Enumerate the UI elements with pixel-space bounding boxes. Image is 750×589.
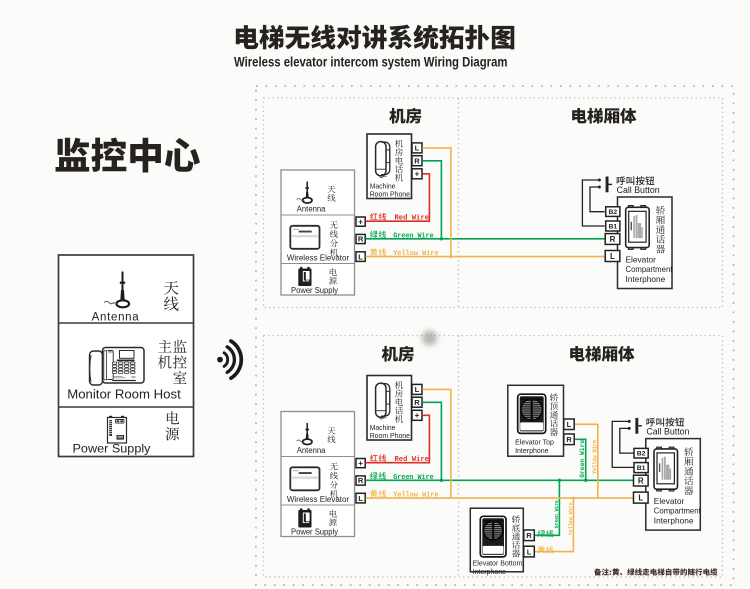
svg-text:Antenna: Antenna	[297, 205, 326, 214]
svg-text:Red Wire: Red Wire	[395, 456, 430, 464]
svg-text:Elevator Bottom: Elevator Bottom	[473, 560, 523, 567]
svg-text:Wireless elevator intercom sys: Wireless elevator intercom system Wiring…	[234, 55, 508, 70]
svg-text:Yellow Wire: Yellow Wire	[591, 440, 598, 474]
svg-text:Elevator: Elevator	[626, 254, 657, 264]
svg-text:Room Phone: Room Phone	[370, 431, 410, 440]
svg-text:Power Supply: Power Supply	[291, 286, 338, 295]
svg-text:R: R	[566, 435, 572, 444]
svg-text:R: R	[358, 235, 364, 244]
svg-text:R: R	[526, 531, 532, 540]
svg-text:Elevator Top: Elevator Top	[515, 439, 554, 446]
svg-text:Power Supply: Power Supply	[73, 441, 151, 455]
svg-text:Monitor Room Host: Monitor Room Host	[67, 387, 181, 402]
svg-text:L: L	[610, 252, 615, 261]
svg-text:Green Wire: Green Wire	[393, 474, 434, 482]
svg-text:Red Wire: Red Wire	[395, 215, 430, 223]
svg-text:L: L	[415, 144, 420, 153]
svg-text:Antenna: Antenna	[92, 312, 140, 324]
svg-text:Wireless Elevator: Wireless Elevator	[287, 254, 350, 263]
svg-text:R: R	[638, 476, 644, 485]
svg-text:+: +	[358, 217, 363, 226]
svg-text:L: L	[358, 494, 363, 503]
svg-text:Compartment: Compartment	[626, 264, 674, 274]
svg-text:Power Supply: Power Supply	[291, 527, 338, 536]
svg-text:Wireless Elevator: Wireless Elevator	[287, 495, 350, 504]
svg-text:+: +	[415, 411, 420, 420]
svg-text:Compartment: Compartment	[654, 506, 702, 516]
svg-text:Interphone: Interphone	[654, 515, 694, 525]
svg-text:R: R	[414, 156, 420, 165]
svg-text:Call Button: Call Button	[646, 426, 689, 436]
svg-text:B1: B1	[608, 223, 617, 230]
svg-text:B2: B2	[637, 451, 646, 458]
svg-text:L: L	[638, 493, 643, 502]
svg-text:Interphone: Interphone	[626, 274, 666, 284]
svg-text:Green Wire: Green Wire	[579, 440, 586, 478]
svg-text:L: L	[567, 420, 572, 429]
svg-text:+: +	[415, 170, 420, 179]
svg-text:R: R	[610, 235, 616, 244]
svg-text:Yellow Wire: Yellow Wire	[393, 492, 439, 500]
svg-text:Antenna: Antenna	[297, 446, 326, 455]
svg-text:Call Button: Call Button	[617, 185, 660, 195]
svg-text:Green Wire: Green Wire	[553, 500, 560, 529]
svg-text:L: L	[415, 385, 420, 394]
svg-text:Green Wire: Green Wire	[393, 232, 434, 240]
svg-text:Yellow Wire: Yellow Wire	[393, 250, 439, 258]
svg-text:Interphone: Interphone	[515, 448, 549, 455]
svg-text:R: R	[414, 398, 420, 407]
svg-text:Yellow Wire: Yellow Wire	[567, 502, 574, 536]
svg-text:L: L	[358, 252, 363, 261]
svg-text:Elevator: Elevator	[654, 496, 685, 506]
svg-text:Room Phone: Room Phone	[370, 190, 410, 199]
svg-text:B2: B2	[608, 209, 617, 216]
svg-text:B1: B1	[637, 465, 646, 472]
svg-text:+: +	[358, 459, 363, 468]
svg-text:R: R	[358, 476, 364, 485]
svg-text:Interphone: Interphone	[473, 569, 507, 576]
svg-text:L: L	[527, 547, 532, 556]
